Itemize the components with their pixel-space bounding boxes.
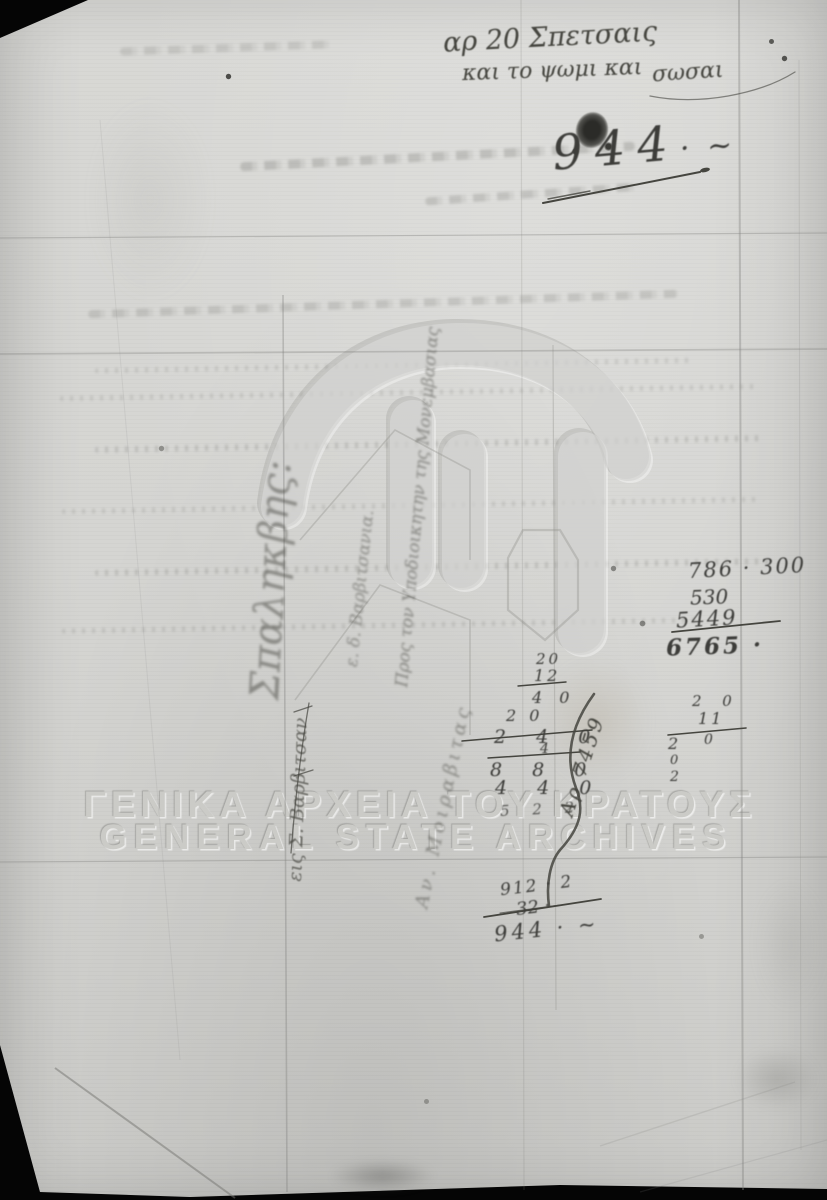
small-calc-row: 0 [704, 732, 713, 748]
addition-row-3: 5449 [675, 605, 738, 632]
watermark-text-english: GENERAL STATE ARCHIVES [99, 818, 732, 858]
small-calc-row: 2 [670, 769, 679, 785]
calc-row: 2 0 [506, 706, 543, 725]
small-calc-row: 11 [698, 709, 724, 728]
doc-number-value: 944 [550, 115, 682, 182]
small-calc-row: 2 0 [692, 692, 740, 710]
calc-row: 4 0 [532, 688, 575, 707]
calc-row: 4 [540, 741, 549, 757]
calc-row: 12 [534, 666, 560, 685]
archive-scan-page: ΓΕΝΙΚΑ ΑΡΧΕΙΑ ΤΟΥ ΚΡΑΤΟΥΣ GENERAL STATE … [0, 0, 827, 1200]
addition-total: 6765 · [666, 631, 765, 661]
header-note-line2-continuation: σωσαι [651, 58, 724, 88]
small-calc-row: 0 [670, 753, 678, 768]
small-calc-row: 2 [668, 734, 678, 753]
doc-number-flourish: · ~ [679, 127, 738, 167]
paper-specks [0, 0, 3, 3]
